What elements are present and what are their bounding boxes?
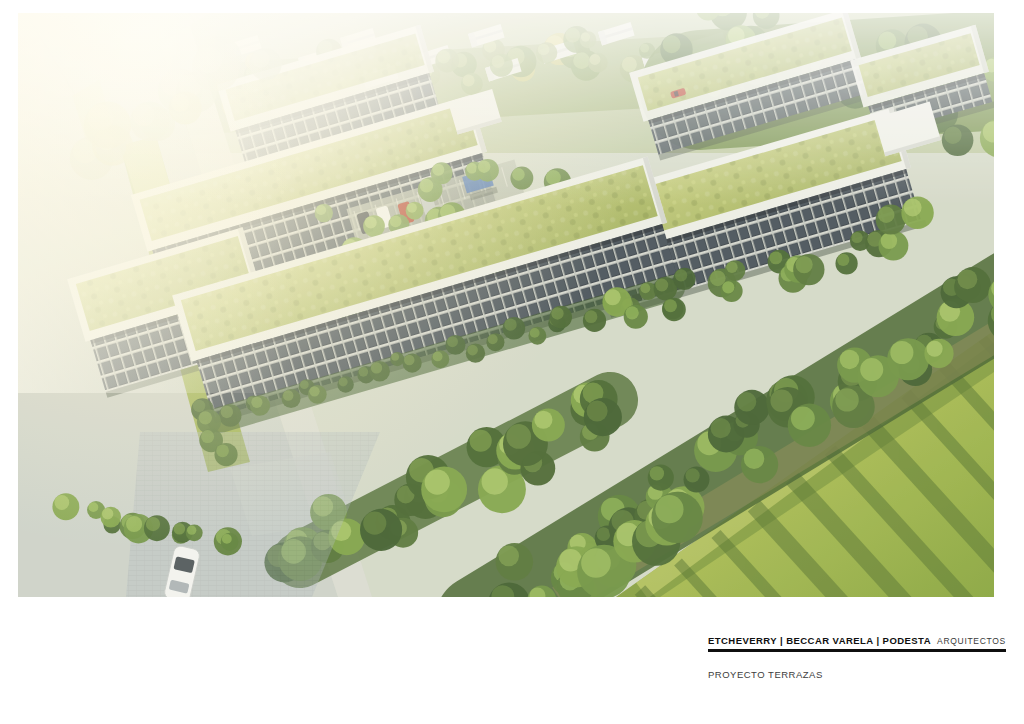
architectural-render xyxy=(18,13,994,597)
divider-rule xyxy=(708,649,1006,652)
presentation-page: ETCHEVERRY | BECCAR VARELA | PODESTA ARQ… xyxy=(0,0,1024,724)
title-block: ETCHEVERRY | BECCAR VARELA | PODESTA ARQ… xyxy=(708,635,1006,680)
warm-veil xyxy=(18,13,994,597)
firm-names: ETCHEVERRY | BECCAR VARELA | PODESTA xyxy=(708,635,931,646)
project-title: PROYECTO TERRAZAS xyxy=(708,669,1006,680)
firm-role: ARQUITECTOS xyxy=(937,636,1006,646)
firm-row: ETCHEVERRY | BECCAR VARELA | PODESTA ARQ… xyxy=(708,635,1006,646)
render-scene xyxy=(18,13,994,597)
